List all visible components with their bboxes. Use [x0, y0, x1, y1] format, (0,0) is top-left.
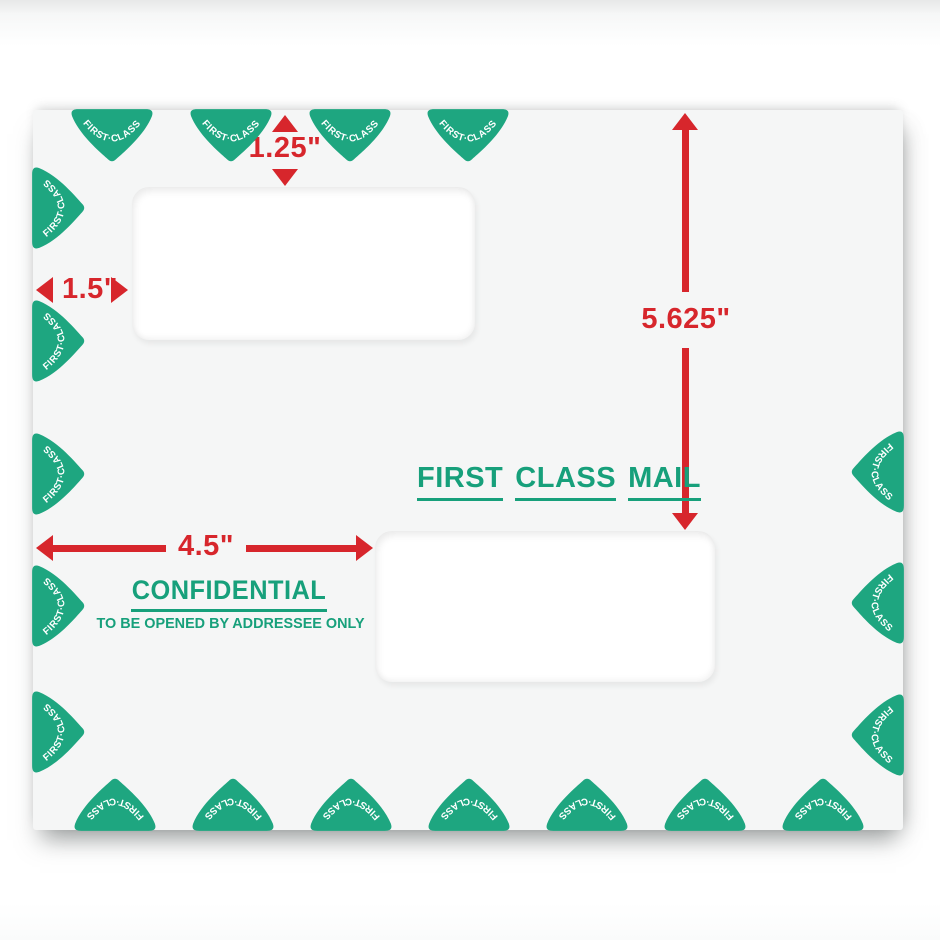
dimension-line [246, 545, 356, 552]
first-class-badge: FIRST·CLASS [781, 777, 865, 831]
first-class-badge: FIRST·CLASS [850, 693, 904, 777]
stamp-word: CLASS [515, 462, 616, 501]
arrow-right-icon [111, 277, 128, 303]
first-class-badge: FIRST·CLASS [32, 690, 86, 774]
dimension-line [53, 545, 166, 552]
first-class-badge: FIRST·CLASS [32, 166, 86, 250]
address-window-bottom [375, 531, 715, 682]
first-class-mail-stamp: FIRSTCLASSMAIL [411, 462, 677, 501]
envelope: 1.25" 1.5" 5.625" 4.5" FIRSTCLASSMAIL CO… [33, 110, 903, 830]
confidential-stamp: CONFIDENTIAL TO BE OPENED BY ADDRESSEE O… [91, 576, 367, 632]
product-photo: 1.25" 1.5" 5.625" 4.5" FIRSTCLASSMAIL CO… [0, 0, 940, 940]
dimension-line [682, 129, 689, 292]
first-class-badge: FIRST·CLASS [663, 777, 747, 831]
first-class-badge: FIRST·CLASS [308, 109, 392, 163]
stamp-word: MAIL [628, 462, 701, 501]
first-class-badge: FIRST·CLASS [426, 109, 510, 163]
first-class-badge: FIRST·CLASS [73, 777, 157, 831]
stamp-word: FIRST [417, 462, 503, 501]
arrow-right-icon [356, 535, 373, 561]
first-class-badge: FIRST·CLASS [32, 432, 86, 516]
first-class-badge: FIRST·CLASS [427, 777, 511, 831]
arrow-up-icon [272, 115, 298, 132]
first-class-badge: FIRST·CLASS [309, 777, 393, 831]
first-class-badge: FIRST·CLASS [545, 777, 629, 831]
first-class-badge: FIRST·CLASS [850, 430, 904, 514]
first-class-badge: FIRST·CLASS [191, 777, 275, 831]
dimension-top-to-lower-window: 5.625" [611, 304, 761, 334]
arrow-down-icon [672, 513, 698, 530]
arrow-down-icon [272, 169, 298, 186]
address-window-top [132, 187, 475, 340]
arrow-left-icon [36, 535, 53, 561]
dimension-left-to-lower-window: 4.5" [166, 531, 246, 561]
first-class-badge: FIRST·CLASS [189, 109, 273, 163]
first-class-badge: FIRST·CLASS [32, 564, 86, 648]
addressee-note: TO BE OPENED BY ADDRESSEE ONLY [97, 615, 362, 632]
first-class-badge: FIRST·CLASS [32, 299, 86, 383]
first-class-badge: FIRST·CLASS [850, 561, 904, 645]
arrow-up-icon [672, 113, 698, 130]
confidential-title: CONFIDENTIAL [99, 576, 358, 606]
underline-rule [131, 609, 327, 612]
first-class-badge: FIRST·CLASS [70, 109, 154, 163]
